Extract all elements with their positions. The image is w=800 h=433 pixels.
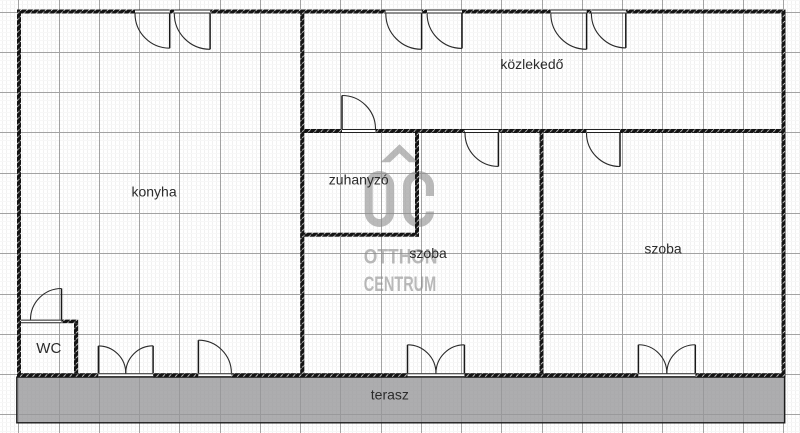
svg-text:WC: WC [36, 340, 61, 357]
svg-text:zuhanyzó: zuhanyzó [329, 172, 389, 188]
svg-text:szoba: szoba [409, 245, 447, 261]
svg-text:közlekedő: közlekedő [500, 56, 563, 72]
svg-text:konyha: konyha [131, 184, 176, 200]
svg-text:szoba: szoba [644, 240, 682, 256]
svg-text:CENTRUM: CENTRUM [364, 273, 436, 296]
svg-text:terasz: terasz [371, 386, 409, 402]
